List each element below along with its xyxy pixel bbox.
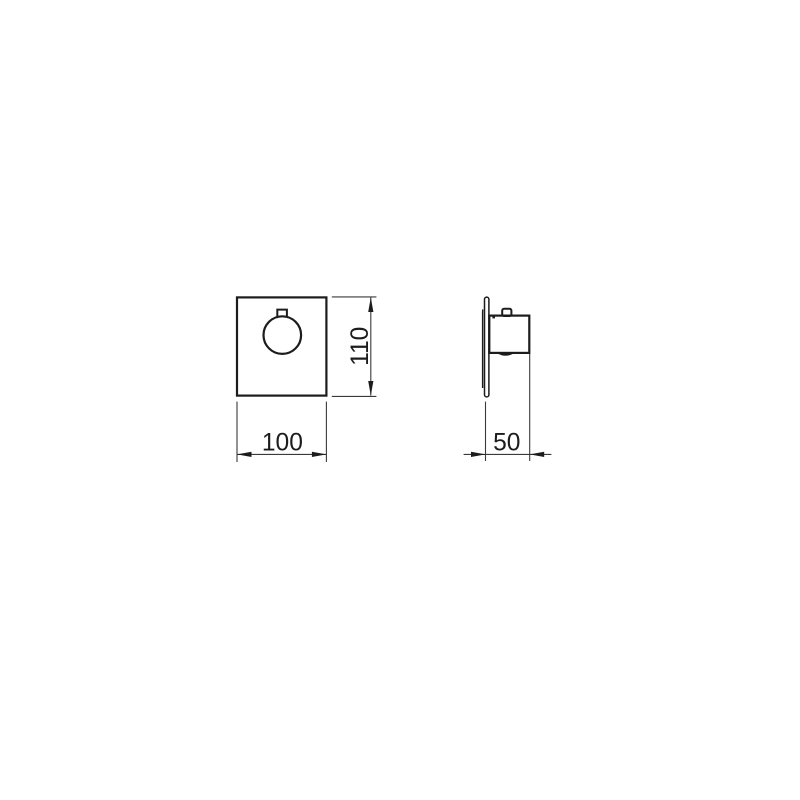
svg-text:100: 100: [262, 430, 303, 457]
svg-text:110: 110: [347, 327, 374, 366]
svg-text:50: 50: [493, 430, 520, 457]
